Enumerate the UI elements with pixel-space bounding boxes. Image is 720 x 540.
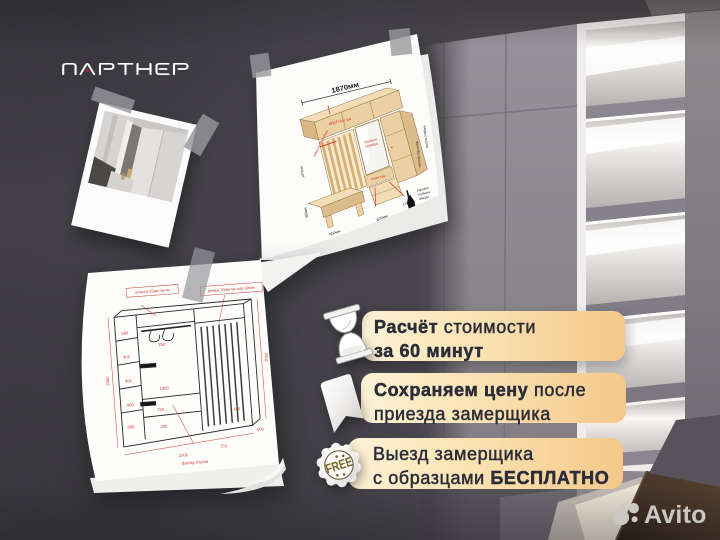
svg-text:750: 750 xyxy=(157,407,165,413)
svg-text:753: 753 xyxy=(220,443,228,449)
svg-text:400: 400 xyxy=(125,378,133,384)
svg-text:180: 180 xyxy=(233,406,241,412)
svg-text:380: 380 xyxy=(127,424,135,430)
svg-text:2560: 2560 xyxy=(264,352,269,362)
svg-text:2560: 2560 xyxy=(105,376,110,386)
svg-text:1400: 1400 xyxy=(159,385,169,391)
svg-text:580: 580 xyxy=(121,330,129,336)
svg-text:250: 250 xyxy=(158,342,166,348)
svg-text:400: 400 xyxy=(127,402,135,408)
svg-text:2300: 2300 xyxy=(178,452,188,458)
svg-text:400: 400 xyxy=(123,354,131,360)
svg-text:Avito: Avito xyxy=(644,501,707,529)
svg-text:500: 500 xyxy=(257,426,265,432)
svg-text:250: 250 xyxy=(160,424,168,430)
